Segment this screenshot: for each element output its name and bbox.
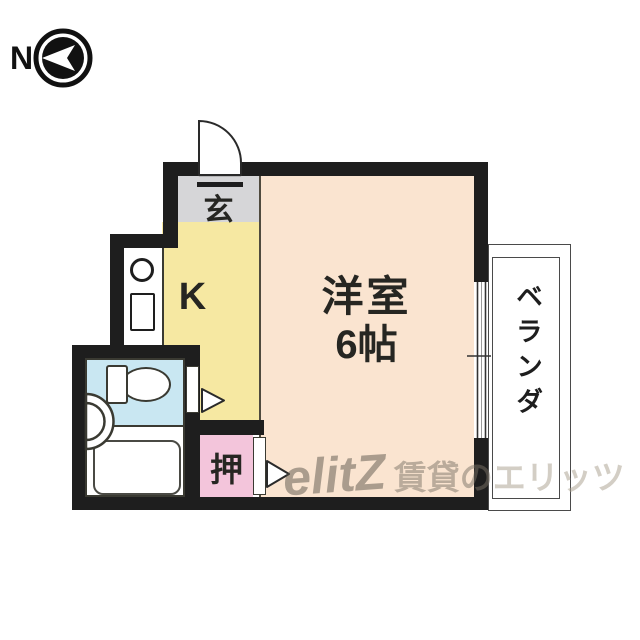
bathtub-icon: [93, 440, 181, 495]
wall-right-upper: [474, 162, 488, 282]
wall-bathroom-top: [72, 345, 200, 358]
closet-label: 押: [200, 443, 253, 491]
north-compass-icon: [33, 28, 93, 88]
toilet-icon: [121, 367, 171, 402]
wall-bottom: [72, 497, 488, 510]
floorplan-image: N: [0, 0, 640, 640]
wall-left-lower: [72, 345, 85, 510]
toilet-tank-icon: [106, 365, 128, 404]
main-room-size: 6帖: [259, 322, 474, 369]
main-room-name: 洋室: [259, 272, 474, 322]
entrance-door-arc-icon: [199, 121, 241, 176]
wall-left-mid: [110, 234, 124, 358]
veranda-label: ベランダ: [508, 282, 547, 472]
sink-icon: [130, 293, 155, 331]
wall-top-right: [240, 162, 488, 176]
wall-closet-top: [185, 420, 264, 435]
north-label: N: [10, 40, 33, 77]
stove-burner-icon: [130, 258, 154, 282]
closet-door: [253, 437, 266, 495]
kitchen-label: K: [165, 276, 220, 319]
bathroom-door: [186, 366, 199, 413]
wall-right-lower: [474, 438, 488, 510]
main-room-label: 洋室 6帖: [259, 272, 474, 369]
entrance-label: 玄: [178, 185, 259, 229]
